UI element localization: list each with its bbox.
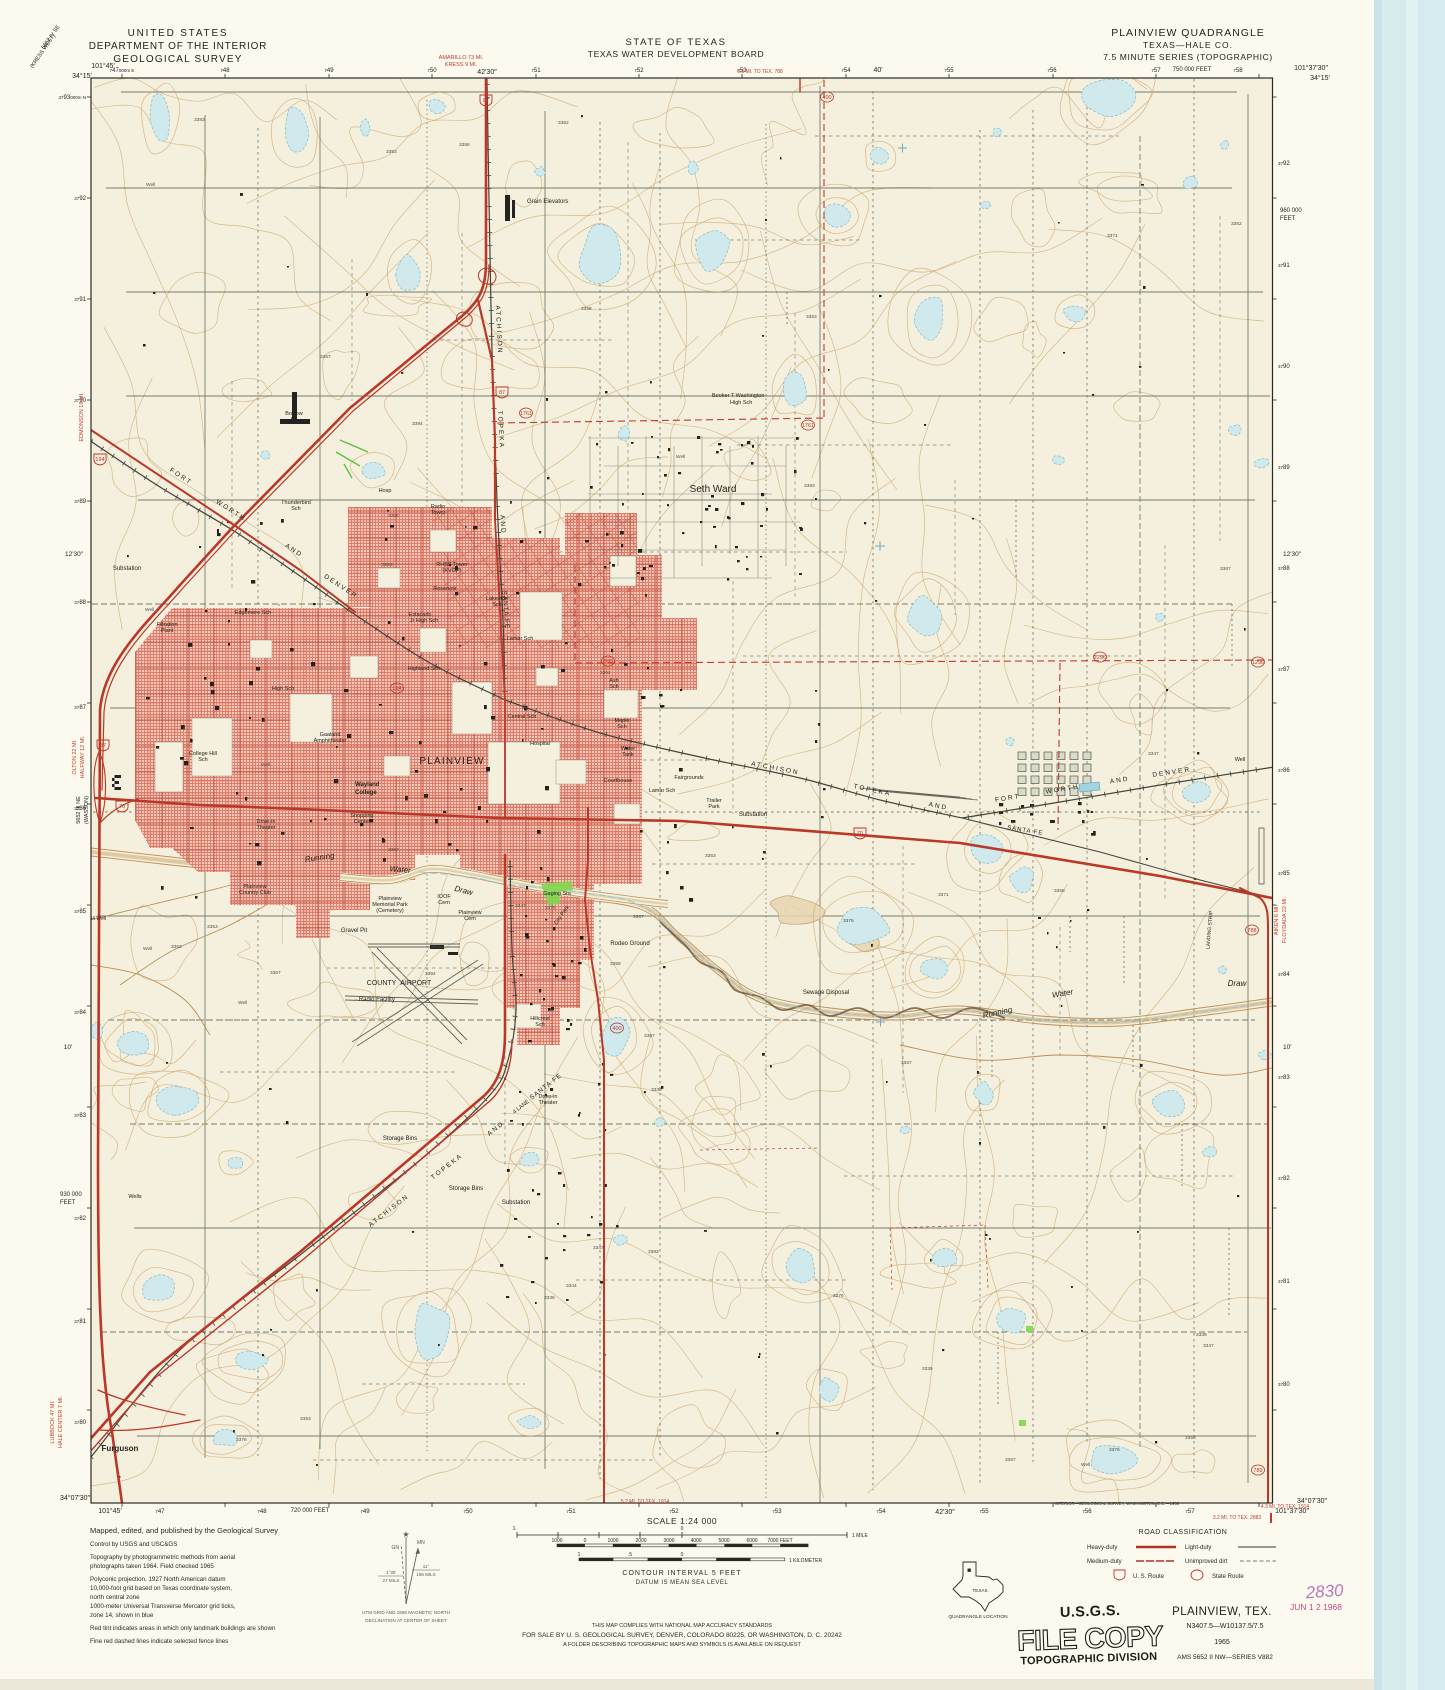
svg-text:Hospital: Hospital xyxy=(530,741,550,747)
svg-text:PLAINVIEW QUADRANGLE: PLAINVIEW QUADRANGLE xyxy=(1111,27,1265,39)
svg-text:87: 87 xyxy=(100,743,106,749)
svg-text:3358: 3358 xyxy=(388,513,399,519)
svg-text:Cem: Cem xyxy=(464,916,476,922)
svg-text:3376: 3376 xyxy=(236,1437,247,1443)
svg-text:U. S. Route: U. S. Route xyxy=(1133,1574,1165,1580)
svg-text:3376: 3376 xyxy=(833,1293,844,1299)
svg-text:(WASSON): (WASSON) xyxy=(84,796,90,824)
svg-text:Sch: Sch xyxy=(617,724,626,730)
svg-text:· Radio Facility: · Radio Facility xyxy=(355,997,395,1003)
svg-text:3347: 3347 xyxy=(1203,1343,1214,1349)
svg-text:★: ★ xyxy=(402,1530,409,1539)
svg-text:High Sch: High Sch xyxy=(730,400,752,406)
svg-text:3367: 3367 xyxy=(644,1033,655,1039)
svg-text:Lamar Sch: Lamar Sch xyxy=(649,788,676,794)
svg-text:Medium-duty: Medium-duty xyxy=(1087,1559,1122,1565)
svg-text:Polyconic projection. 1927 N: Polyconic projection. 1927 North America… xyxy=(90,1576,226,1583)
svg-text:AIKEN 6 MI.: AIKEN 6 MI. xyxy=(1274,904,1280,935)
svg-text:3353: 3353 xyxy=(806,314,817,320)
svg-text:Sch: Sch xyxy=(609,684,618,690)
svg-text:Well: Well xyxy=(145,607,154,613)
svg-text:1761: 1761 xyxy=(802,423,814,429)
svg-text:(KVOP): (KVOP) xyxy=(443,568,462,574)
svg-text:3353: 3353 xyxy=(386,149,397,155)
svg-text:TEXAS—HALE CO.: TEXAS—HALE CO. xyxy=(1143,40,1233,50)
svg-text:Country Club: Country Club xyxy=(239,890,271,896)
svg-text:THIS MAP COMPLIES WITH NATIONA: THIS MAP COMPLIES WITH NATIONAL MAP ACCU… xyxy=(592,1623,773,1629)
svg-text:TEXAS WATER DEVELOPMENT BOARD: TEXAS WATER DEVELOPMENT BOARD xyxy=(588,49,764,59)
svg-text:1761: 1761 xyxy=(520,411,532,417)
svg-text:3358: 3358 xyxy=(1185,1435,1196,1441)
svg-text:photographs taken 1964. Fiel: photographs taken 1964. Field checked 19… xyxy=(90,1563,214,1570)
svg-text:Substation: Substation xyxy=(113,566,141,572)
svg-text:0: 0 xyxy=(584,1538,587,1544)
svg-text:Water: Water xyxy=(389,864,411,875)
svg-text:Fairgrounds: Fairgrounds xyxy=(674,775,704,781)
svg-text:6000: 6000 xyxy=(746,1538,757,1544)
svg-text:1296: 1296 xyxy=(1252,660,1264,666)
svg-text:12'30″: 12'30″ xyxy=(65,551,84,558)
svg-text:34°15': 34°15' xyxy=(72,72,92,80)
svg-text:Jr High Sch: Jr High Sch xyxy=(410,618,438,624)
svg-text:GEOLOGICAL SURVEY: GEOLOGICAL SURVEY xyxy=(113,54,242,65)
svg-text:Substation: Substation xyxy=(739,812,767,818)
svg-text:KRESS 9 MI.: KRESS 9 MI. xyxy=(445,62,478,68)
svg-text:Furguson: Furguson xyxy=(102,1444,139,1453)
svg-text:State Route: State Route xyxy=(1212,1574,1244,1580)
svg-text:A FOLDER DESCRIBING TOPOGRAPHI: A FOLDER DESCRIBING TOPOGRAPHIC MAPS AND… xyxy=(563,1642,801,1648)
svg-text:DEPARTMENT OF THE INTERIOR: DEPARTMENT OF THE INTERIOR xyxy=(89,41,267,52)
svg-text:Well: Well xyxy=(261,762,270,768)
svg-text:70: 70 xyxy=(119,804,125,810)
svg-text:5.2 MI. TO TEX. 1914: 5.2 MI. TO TEX. 1914 xyxy=(621,1499,670,1505)
svg-text:Control by USGS and USC&GS: Control by USGS and USC&GS xyxy=(90,1541,177,1548)
svg-text:Well: Well xyxy=(1235,757,1246,763)
svg-text:1965: 1965 xyxy=(1214,1639,1230,1646)
svg-text:UTM GRID AND 1965 MAGNETIC NOR: UTM GRID AND 1965 MAGNETIC NORTH xyxy=(362,1610,450,1615)
svg-text:Park: Park xyxy=(708,804,720,810)
svg-text:.5: .5 xyxy=(628,1552,632,1558)
svg-text:Center: Center xyxy=(354,819,371,825)
svg-text:ROAD CLASSIFICATION: ROAD CLASSIFICATION xyxy=(1139,1529,1228,1536)
svg-text:1000: 1000 xyxy=(551,1538,562,1544)
svg-text:3376: 3376 xyxy=(843,918,854,924)
svg-text:SCALE 1:24 000: SCALE 1:24 000 xyxy=(647,1516,717,1526)
svg-text:zone 14, shown in blue: zone 14, shown in blue xyxy=(90,1612,154,1619)
svg-text:Unimproved dirt: Unimproved dirt xyxy=(1185,1559,1228,1565)
svg-text:10': 10' xyxy=(64,1044,72,1051)
svg-text:10,000-foot grid based on Texa: 10,000-foot grid based on Texas coordina… xyxy=(90,1585,232,1592)
svg-text:87: 87 xyxy=(499,390,505,396)
svg-text:12'30″: 12'30″ xyxy=(1283,551,1302,558)
svg-text:7000 FEET: 7000 FEET xyxy=(767,1538,792,1544)
svg-text:OLTON 22 MI.: OLTON 22 MI. xyxy=(72,739,78,775)
svg-text:750 000 FEET: 750 000 FEET xyxy=(1173,67,1212,73)
svg-text:101°37'30″: 101°37'30″ xyxy=(1294,64,1328,72)
svg-text:Sch: Sch xyxy=(291,506,300,512)
svg-text:Topography by photogrammetric: Topography by photogrammetric methods fr… xyxy=(90,1554,235,1561)
svg-text:Storage Bins: Storage Bins xyxy=(383,1136,417,1142)
svg-text:3367: 3367 xyxy=(320,354,331,360)
svg-text:1°30′: 1°30′ xyxy=(386,1570,396,1575)
svg-text:194: 194 xyxy=(392,686,401,692)
svg-text:DECLINATION AT CENTER OF SHEET: DECLINATION AT CENTER OF SHEET xyxy=(365,1618,447,1623)
svg-text:Mapped, edited, and published: Mapped, edited, and published by the Geo… xyxy=(90,1526,278,1535)
svg-text:Well: Well xyxy=(1081,1462,1090,1468)
svg-text:Theater: Theater xyxy=(257,825,276,831)
svg-text:GN: GN xyxy=(392,1545,400,1551)
svg-text:3358: 3358 xyxy=(610,961,621,967)
svg-text:PLAINVIEW, TEX.: PLAINVIEW, TEX. xyxy=(1172,1606,1272,1618)
svg-text:JUN 1 2 1968: JUN 1 2 1968 xyxy=(1290,1602,1342,1612)
svg-text:DATUM IS MEAN SEA LEVEL: DATUM IS MEAN SEA LEVEL xyxy=(636,1580,729,1586)
svg-text:4000: 4000 xyxy=(690,1538,701,1544)
svg-text:(Cemetery): (Cemetery) xyxy=(376,908,404,914)
svg-text:34°07'30″: 34°07'30″ xyxy=(60,1494,90,1502)
svg-text:College: College xyxy=(355,790,377,796)
svg-text:3367: 3367 xyxy=(270,970,281,976)
svg-text:1 MILE: 1 MILE xyxy=(852,1533,869,1539)
svg-text:3371: 3371 xyxy=(938,892,949,898)
svg-text:4.3 MI. TO TEX. 1914: 4.3 MI. TO TEX. 1914 xyxy=(1261,1504,1310,1510)
svg-text:3358: 3358 xyxy=(459,142,470,148)
svg-text:101°45': 101°45' xyxy=(98,1507,122,1515)
svg-text:11°: 11° xyxy=(423,1564,430,1569)
svg-text:3347: 3347 xyxy=(515,903,526,909)
svg-text:Well: Well xyxy=(146,182,155,188)
svg-text:Highland Sch: Highland Sch xyxy=(408,666,441,672)
svg-text:U.S.G.S.: U.S.G.S. xyxy=(1060,1603,1121,1621)
svg-text:3367: 3367 xyxy=(633,914,644,920)
svg-text:788: 788 xyxy=(1247,928,1256,934)
svg-text:Amphitheater: Amphitheater xyxy=(314,738,347,744)
svg-text:Edgemere Sch: Edgemere Sch xyxy=(235,610,271,616)
svg-text:3339: 3339 xyxy=(544,1295,555,1301)
svg-text:Gravel Pit: Gravel Pit xyxy=(341,928,368,934)
svg-text:34°15': 34°15' xyxy=(1310,74,1330,82)
svg-text:3394: 3394 xyxy=(425,971,436,977)
svg-text:3383: 3383 xyxy=(648,1249,659,1255)
svg-text:FOR SALE BY U. S. GEOLOGICAL S: FOR SALE BY U. S. GEOLOGICAL SURVEY, DEN… xyxy=(522,1632,842,1639)
svg-text:789: 789 xyxy=(1253,1468,1262,1474)
svg-text:Reservoir: Reservoir xyxy=(433,586,457,592)
svg-text:QUADRANGLE LOCATION: QUADRANGLE LOCATION xyxy=(948,1614,1008,1620)
svg-text:3367: 3367 xyxy=(388,847,399,853)
svg-text:STATE OF TEXAS: STATE OF TEXAS xyxy=(625,37,726,48)
svg-text:40': 40' xyxy=(873,67,882,74)
svg-text:FLOYDADA 22 MI.: FLOYDADA 22 MI. xyxy=(1282,896,1288,943)
svg-text:Draw: Draw xyxy=(1228,979,1248,988)
svg-text:Cem: Cem xyxy=(438,900,450,906)
svg-text:2296: 2296 xyxy=(1094,655,1106,661)
svg-text:Gaging Sta: Gaging Sta xyxy=(543,891,571,897)
svg-text:3394: 3394 xyxy=(412,421,423,427)
svg-text:FEET: FEET xyxy=(1280,216,1296,222)
svg-text:COUNTY AIRPORT: COUNTY AIRPORT xyxy=(367,980,432,987)
svg-text:3353: 3353 xyxy=(300,1416,311,1422)
svg-text:Grain Elevators: Grain Elevators xyxy=(527,199,568,205)
svg-text:800: 800 xyxy=(603,659,612,665)
svg-text:LUBBOCK 47 MI.: LUBBOCK 47 MI. xyxy=(50,1400,56,1444)
svg-text:Wells: Wells xyxy=(128,1194,142,1200)
svg-text:3353: 3353 xyxy=(705,853,716,859)
svg-text:42'30″: 42'30″ xyxy=(935,1509,955,1516)
svg-text:3353: 3353 xyxy=(382,562,393,568)
svg-text:MN: MN xyxy=(417,1540,425,1546)
svg-text:930 000: 930 000 xyxy=(60,1192,82,1198)
svg-text:Central Sch: Central Sch xyxy=(508,714,537,720)
svg-text:Sch: Sch xyxy=(198,757,207,763)
svg-text:2830: 2830 xyxy=(1304,1581,1345,1603)
svg-text:2000: 2000 xyxy=(635,1538,646,1544)
svg-text:3358: 3358 xyxy=(581,306,592,312)
svg-text:1000-meter Universal Transvers: 1000-meter Universal Transverse Mercator… xyxy=(90,1603,236,1610)
svg-text:HALFWAY 12 MI.: HALFWAY 12 MI. xyxy=(80,735,86,778)
svg-text:Well: Well xyxy=(676,454,685,460)
svg-text:87: 87 xyxy=(483,98,489,104)
svg-text:Tower: Tower xyxy=(431,510,446,516)
svg-text:Wayland: Wayland xyxy=(355,782,380,788)
svg-text:3376: 3376 xyxy=(1109,1447,1120,1453)
svg-text:HALE CENTER 7 MI.: HALE CENTER 7 MI. xyxy=(58,1395,64,1448)
svg-text:Storage Bins: Storage Bins xyxy=(449,1186,483,1192)
svg-text:AMARILLO 73 MI.: AMARILLO 73 MI. xyxy=(439,55,484,61)
svg-text:3339: 3339 xyxy=(922,1366,933,1372)
svg-text:194: 194 xyxy=(95,457,104,463)
svg-text:Heavy-duty: Heavy-duty xyxy=(1087,1545,1117,1551)
svg-text:3383: 3383 xyxy=(194,117,205,123)
svg-text:0: 0 xyxy=(681,1552,684,1558)
svg-text:27 MILS: 27 MILS xyxy=(383,1578,400,1583)
svg-text:Theater: Theater xyxy=(539,1100,558,1106)
svg-text:1 KILOMETER: 1 KILOMETER xyxy=(789,1558,822,1564)
svg-text:TEXAS: TEXAS xyxy=(972,1588,987,1593)
svg-text:101°45': 101°45' xyxy=(91,62,115,70)
svg-text:196 MILS: 196 MILS xyxy=(416,1572,435,1577)
svg-text:3376: 3376 xyxy=(545,905,556,911)
svg-text:· INTERIOR—GEOLOGICAL SURVEY,: · INTERIOR—GEOLOGICAL SURVEY, WASHINGTON… xyxy=(1052,1501,1180,1506)
svg-text:Sewage Disposal: Sewage Disposal xyxy=(803,990,849,996)
svg-text:AMS 5652 II NW—SERIES V882: AMS 5652 II NW—SERIES V882 xyxy=(1177,1654,1273,1661)
svg-text:Sch: Sch xyxy=(492,602,501,608)
svg-text:3344: 3344 xyxy=(566,1283,577,1289)
svg-text:FEET: FEET xyxy=(60,1200,76,1206)
svg-text:3000: 3000 xyxy=(663,1538,674,1544)
svg-text:AND: AND xyxy=(498,515,506,535)
svg-text:Hosp: Hosp xyxy=(379,488,392,494)
svg-text:3339: 3339 xyxy=(1196,1332,1207,1338)
svg-text:3358: 3358 xyxy=(1054,888,1065,894)
svg-text:0.5 MI. TO TEX. 788: 0.5 MI. TO TEX. 788 xyxy=(737,69,783,75)
svg-text:Sch: Sch xyxy=(535,1022,544,1028)
svg-text:0: 0 xyxy=(681,1526,684,1532)
svg-text:Fine red dashed lines indicate: Fine red dashed lines indicate selected … xyxy=(90,1638,228,1645)
svg-text:3367: 3367 xyxy=(1005,1457,1016,1463)
svg-text:Seth Ward: Seth Ward xyxy=(690,484,737,495)
svg-text:3.2 MI. TO TEX. 2883: 3.2 MI. TO TEX. 2883 xyxy=(1213,1515,1262,1521)
svg-text:Light-duty: Light-duty xyxy=(1185,1545,1211,1551)
svg-text:3367: 3367 xyxy=(901,1060,912,1066)
svg-text:Tank: Tank xyxy=(622,752,634,758)
svg-text:Substation: Substation xyxy=(502,1200,530,1206)
svg-text:High Sch: High Sch xyxy=(272,686,294,692)
svg-text:Courthouse: Courthouse xyxy=(604,778,632,784)
svg-text:42'30″: 42'30″ xyxy=(477,69,497,76)
svg-text:7.5 MINUTE SERIES (TOPOGRAPHIC: 7.5 MINUTE SERIES (TOPOGRAPHIC) xyxy=(1103,52,1273,62)
svg-text:3347: 3347 xyxy=(1148,751,1159,757)
svg-text:Pit: Pit xyxy=(291,417,298,423)
svg-text:N3407.5—W10137.5/7.5: N3407.5—W10137.5/7.5 xyxy=(1186,1623,1263,1630)
svg-text:Well: Well xyxy=(143,946,152,952)
svg-text:EDMONSON 19 MI.: EDMONSON 19 MI. xyxy=(79,392,85,442)
svg-text:Rodeo Ground: Rodeo Ground xyxy=(610,941,649,947)
svg-text:1: 1 xyxy=(578,1552,581,1558)
svg-text:400: 400 xyxy=(822,95,831,101)
svg-text:PLAINVIEW: PLAINVIEW xyxy=(419,756,484,767)
svg-text:3362: 3362 xyxy=(1231,221,1242,227)
svg-text:10': 10' xyxy=(1283,1044,1291,1051)
svg-text:3339: 3339 xyxy=(651,1087,662,1093)
svg-text:960 000: 960 000 xyxy=(1280,208,1302,214)
svg-text:720 000 FEET: 720 000 FEET xyxy=(291,1508,330,1514)
svg-text:3353: 3353 xyxy=(207,924,218,930)
svg-text:UNITED STATES: UNITED STATES xyxy=(128,28,229,39)
svg-text:70: 70 xyxy=(857,831,863,837)
svg-text:1: 1 xyxy=(513,1526,516,1532)
svg-text:3383: 3383 xyxy=(804,483,815,489)
svg-text:400: 400 xyxy=(612,1026,621,1032)
svg-text:3362: 3362 xyxy=(558,120,569,126)
svg-text:Booker T Washington: Booker T Washington xyxy=(712,393,764,399)
svg-text:5000: 5000 xyxy=(718,1538,729,1544)
svg-text:3347: 3347 xyxy=(593,1245,604,1251)
svg-text:5652 III NE: 5652 III NE xyxy=(76,796,82,824)
svg-text:north central zone: north central zone xyxy=(90,1594,140,1601)
svg-text:3367: 3367 xyxy=(1220,566,1231,572)
svg-text:Well: Well xyxy=(238,1000,247,1006)
svg-text:Red tint indicates areas in wh: Red tint indicates areas in which only l… xyxy=(90,1625,276,1632)
svg-text:3353: 3353 xyxy=(171,944,182,950)
svg-text:3371: 3371 xyxy=(1107,233,1118,239)
svg-text:Lamar Sch: Lamar Sch xyxy=(507,636,534,642)
svg-text:CONTOUR INTERVAL 5 FEET: CONTOUR INTERVAL 5 FEET xyxy=(622,1570,741,1577)
svg-text:Plant: Plant xyxy=(161,628,174,634)
svg-text:1000: 1000 xyxy=(607,1538,618,1544)
svg-text:3362: 3362 xyxy=(600,670,611,676)
